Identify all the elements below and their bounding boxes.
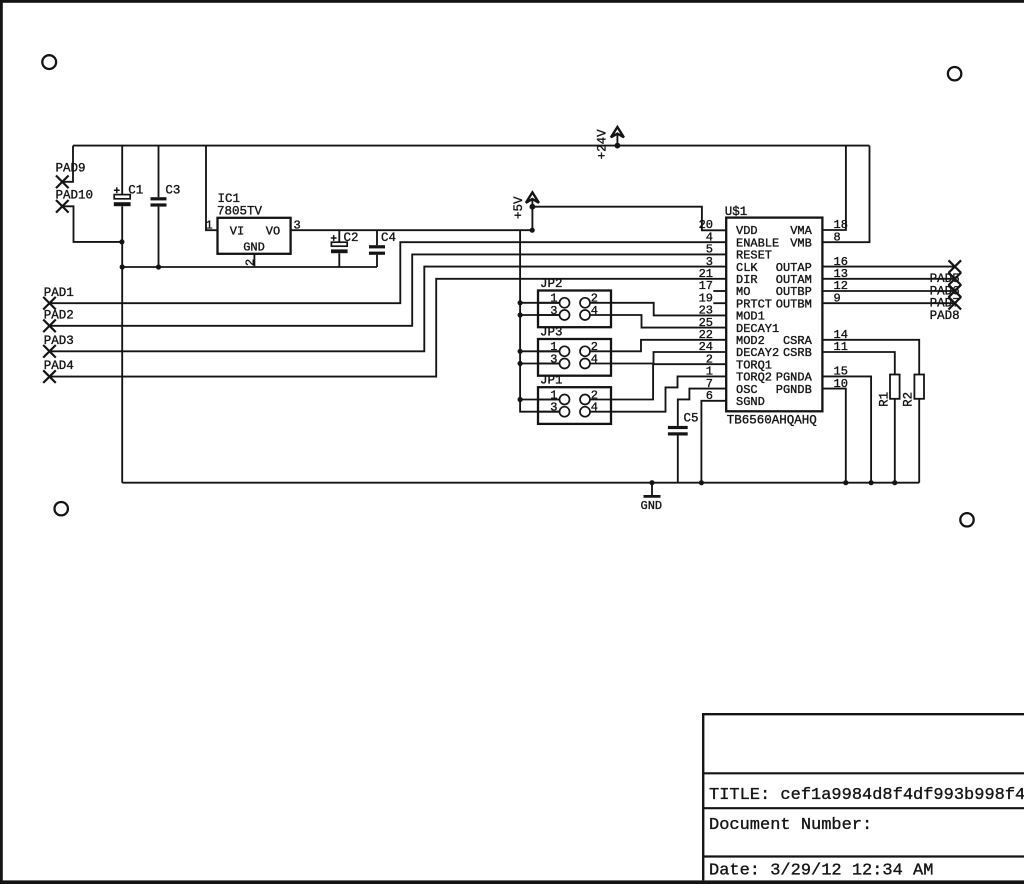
svg-text:PAD9: PAD9: [56, 162, 86, 176]
svg-text:PGNDB: PGNDB: [776, 383, 812, 397]
svg-text:TB6560AHQAHQ: TB6560AHQAHQ: [727, 414, 817, 428]
svg-text:VO: VO: [266, 224, 280, 238]
svg-text:OUTBM: OUTBM: [776, 297, 812, 311]
svg-text:JP2: JP2: [540, 277, 563, 291]
svg-text:CSRB: CSRB: [783, 346, 812, 360]
svg-text:PAD8: PAD8: [930, 309, 960, 323]
svg-text:PAD2: PAD2: [44, 308, 74, 322]
svg-text:PAD4: PAD4: [44, 359, 74, 373]
svg-text:SGND: SGND: [736, 395, 765, 409]
svg-text:GND: GND: [243, 240, 265, 254]
svg-text:VMB: VMB: [790, 236, 812, 250]
svg-text:JP3: JP3: [540, 325, 563, 339]
svg-text:GND: GND: [641, 499, 663, 513]
svg-text:3: 3: [550, 401, 557, 415]
svg-text:1: 1: [205, 219, 212, 233]
svg-text:C3: C3: [165, 184, 180, 198]
svg-text:3: 3: [294, 219, 301, 233]
svg-text:VI: VI: [230, 224, 244, 238]
svg-text:C5: C5: [684, 412, 699, 426]
svg-text:Date: 3/29/12 12:34 AM: Date: 3/29/12 12:34 AM: [709, 862, 933, 881]
svg-text:C4: C4: [381, 231, 396, 245]
svg-text:JP1: JP1: [540, 374, 563, 388]
svg-text:+5V: +5V: [512, 196, 526, 219]
svg-text:7805TV: 7805TV: [217, 205, 263, 219]
svg-text:2: 2: [244, 259, 258, 266]
svg-text:6: 6: [706, 389, 713, 403]
svg-text:TITLE: cef1a9984d8f4df993b998f: TITLE: cef1a9984d8f4df993b998f4a: [709, 786, 1024, 805]
svg-text:PAD3: PAD3: [44, 334, 74, 348]
svg-text:+24V: +24V: [595, 129, 609, 160]
svg-text:R1: R1: [878, 392, 892, 407]
svg-text:Document Number:: Document Number:: [709, 816, 872, 835]
svg-text:PAD1: PAD1: [44, 286, 74, 300]
svg-text:PAD10: PAD10: [56, 188, 94, 202]
svg-text:R2: R2: [901, 392, 915, 407]
